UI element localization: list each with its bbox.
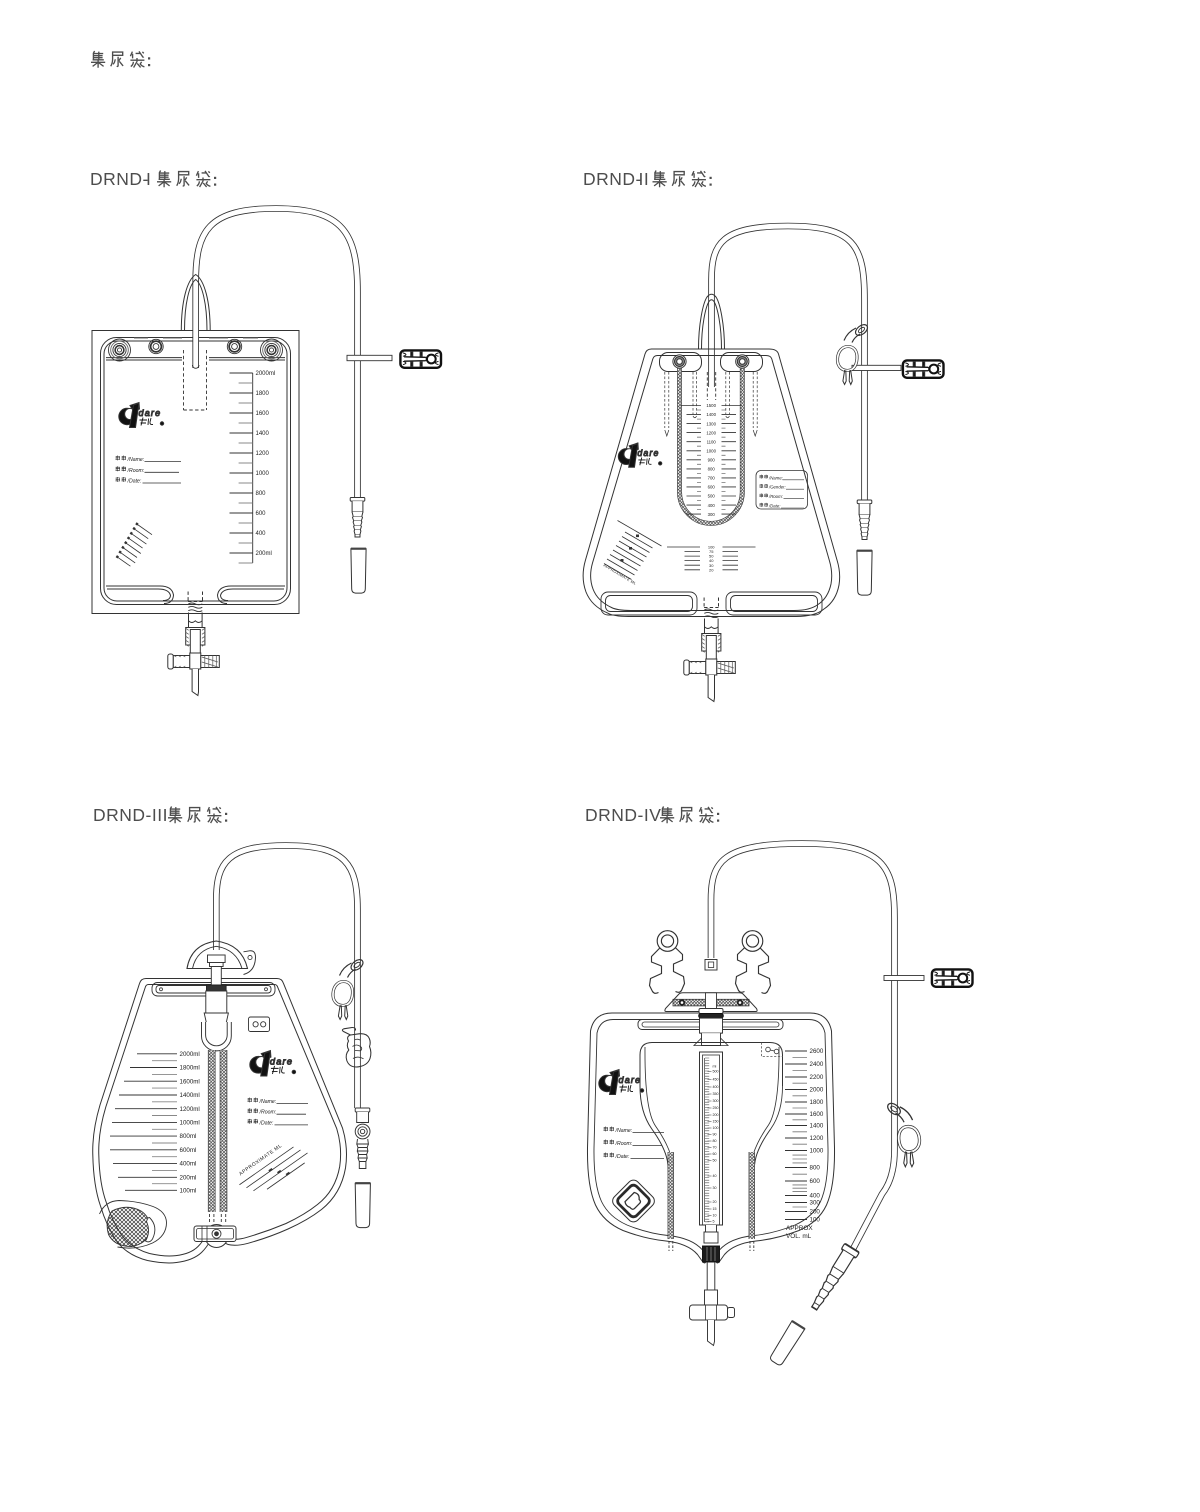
svg-text:5: 5 (713, 1220, 715, 1224)
svg-text:80: 80 (713, 1139, 717, 1143)
svg-text:DRND-III: DRND-III (93, 805, 168, 825)
svg-text:1600ml: 1600ml (180, 1078, 200, 1085)
svg-text:1400ml: 1400ml (180, 1092, 200, 1099)
svg-text:/Room:: /Room: (768, 494, 784, 499)
svg-text:/Name:: /Name: (768, 475, 784, 480)
svg-text:400: 400 (810, 1193, 821, 1200)
svg-text:/Name:: /Name: (259, 1099, 277, 1105)
svg-text:70: 70 (713, 1146, 717, 1150)
svg-text:400: 400 (708, 503, 716, 508)
svg-text:/Room:: /Room: (127, 468, 145, 474)
svg-text:2000ml: 2000ml (256, 371, 276, 377)
svg-text:/Date:: /Date: (127, 479, 142, 485)
svg-text:900: 900 (708, 458, 716, 463)
svg-text:150: 150 (713, 1120, 719, 1124)
svg-text:1800: 1800 (256, 391, 270, 397)
svg-text:1600: 1600 (256, 411, 270, 417)
svg-text:90: 90 (713, 1133, 717, 1137)
svg-text:DRND-: DRND- (90, 169, 149, 189)
svg-text:200ml: 200ml (180, 1174, 197, 1181)
svg-text:600ml: 600ml (180, 1147, 197, 1154)
svg-text:15: 15 (713, 1207, 717, 1211)
svg-text:300: 300 (708, 512, 716, 517)
svg-text:2000: 2000 (810, 1087, 824, 1094)
svg-text:DRND-IV: DRND-IV (585, 805, 661, 825)
svg-text:1200: 1200 (706, 430, 716, 435)
svg-text:400ml: 400ml (180, 1161, 197, 1168)
svg-text:1800ml: 1800ml (180, 1065, 200, 1072)
svg-text:1200: 1200 (810, 1135, 824, 1142)
svg-text:800: 800 (256, 491, 267, 497)
svg-text:600: 600 (810, 1178, 821, 1185)
svg-text:/Date:: /Date: (768, 504, 781, 509)
svg-text:200: 200 (810, 1209, 821, 1216)
svg-text:800: 800 (810, 1165, 821, 1172)
svg-text:2000ml: 2000ml (180, 1051, 200, 1058)
svg-text:2400: 2400 (810, 1061, 824, 1068)
svg-text:1100: 1100 (707, 439, 717, 444)
svg-text:600: 600 (708, 485, 716, 490)
svg-text:200ml: 200ml (256, 551, 272, 557)
svg-text:100: 100 (713, 1126, 719, 1130)
svg-text:300: 300 (810, 1200, 821, 1207)
svg-text:30: 30 (713, 1186, 717, 1190)
svg-text:/Name:: /Name: (615, 1128, 633, 1134)
svg-text:I: I (146, 169, 151, 189)
svg-text:1200: 1200 (256, 451, 270, 457)
svg-text:400: 400 (713, 1085, 719, 1089)
svg-text:VOL. mL: VOL. mL (786, 1233, 812, 1240)
svg-text:1800: 1800 (810, 1099, 824, 1106)
svg-text:400: 400 (256, 531, 267, 537)
svg-text:200: 200 (713, 1113, 719, 1117)
svg-text:/Date:: /Date: (615, 1154, 630, 1160)
svg-text:500: 500 (713, 1070, 719, 1074)
svg-text:800: 800 (708, 467, 716, 472)
svg-text:1400: 1400 (706, 412, 716, 417)
svg-text:1000ml: 1000ml (180, 1120, 200, 1127)
svg-text:20: 20 (713, 1200, 717, 1204)
svg-text:50: 50 (713, 1159, 717, 1163)
svg-text:10: 10 (713, 1214, 717, 1218)
svg-text:700: 700 (708, 476, 716, 481)
svg-text:/Room:: /Room: (259, 1110, 277, 1116)
svg-text:60: 60 (713, 1152, 717, 1156)
svg-text:APPROX: APPROX (786, 1225, 813, 1232)
svg-text:250: 250 (713, 1106, 719, 1110)
svg-text:1200ml: 1200ml (180, 1106, 200, 1113)
svg-text:1400: 1400 (256, 431, 270, 437)
svg-text:500: 500 (708, 494, 716, 499)
svg-text:/Name:: /Name: (127, 457, 145, 463)
svg-text:100: 100 (810, 1217, 821, 1224)
svg-text:/Gender:: /Gender: (768, 485, 787, 490)
svg-text:350: 350 (713, 1092, 719, 1096)
svg-text:1000: 1000 (256, 471, 270, 477)
svg-text:450: 450 (713, 1078, 719, 1082)
svg-text:2200: 2200 (810, 1074, 824, 1081)
svg-text:/Room:: /Room: (615, 1141, 633, 1147)
svg-text:100ml: 100ml (180, 1187, 197, 1194)
svg-text:1000: 1000 (810, 1148, 824, 1155)
svg-text:1300: 1300 (706, 421, 716, 426)
svg-text:II: II (639, 169, 650, 189)
svg-text:1500: 1500 (706, 403, 716, 408)
svg-text:1400: 1400 (810, 1123, 824, 1130)
svg-text:DRND-: DRND- (583, 169, 642, 189)
svg-text:20: 20 (709, 567, 714, 572)
svg-text:2600: 2600 (810, 1048, 824, 1055)
svg-text:/Date:: /Date: (259, 1120, 274, 1126)
svg-text:1600: 1600 (810, 1111, 824, 1118)
svg-text:800ml: 800ml (180, 1133, 197, 1140)
svg-text:ml: ml (713, 1065, 717, 1069)
svg-text:300: 300 (713, 1099, 719, 1103)
svg-text:40: 40 (713, 1174, 717, 1178)
svg-text:600: 600 (256, 511, 267, 517)
svg-text:1000: 1000 (706, 448, 716, 453)
